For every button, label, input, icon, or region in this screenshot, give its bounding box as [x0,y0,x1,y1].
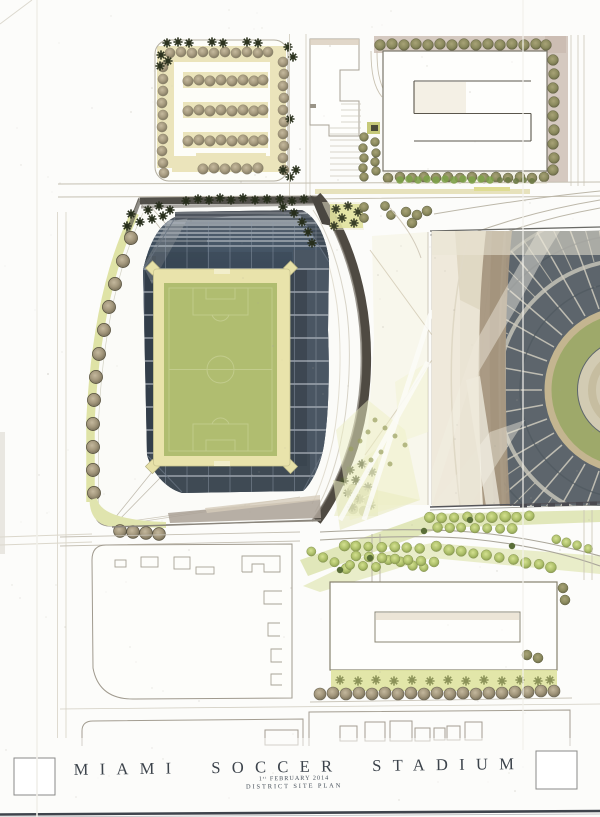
svg-text:DISTRICT SITE PLAN: DISTRICT SITE PLAN [246,782,342,790]
svg-text:1ˢᵗ FEBRUARY 2014: 1ˢᵗ FEBRUARY 2014 [259,775,330,783]
